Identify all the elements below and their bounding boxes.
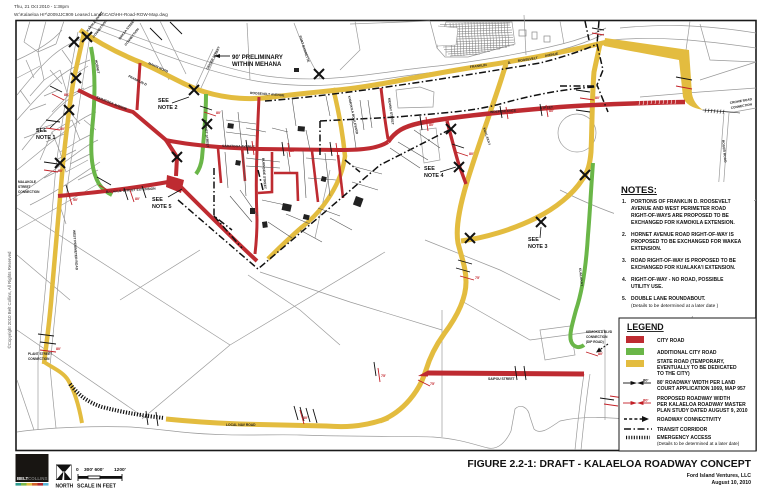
svg-text:W:\Kalaeloa HI*\2009JJC909 L: W:\Kalaeloa HI*\2009JJC909 Leased Lands\… [14, 12, 168, 17]
svg-text:SEE: SEE [152, 197, 163, 203]
svg-text:2.: 2. [622, 232, 627, 238]
svg-text:LEGEND: LEGEND [627, 322, 664, 332]
svg-text:NOTE 1: NOTE 1 [36, 135, 55, 141]
svg-text:(Details to be determined at a: (Details to be determined at a later dat… [657, 441, 740, 446]
svg-text:SEE: SEE [424, 166, 435, 172]
svg-text:80': 80' [509, 111, 514, 115]
svg-text:ROAD RIGHT-OF-WAY IS PROPOSED: ROAD RIGHT-OF-WAY IS PROPOSED TO BE [631, 258, 737, 264]
svg-text:NOTE 5: NOTE 5 [152, 204, 171, 210]
svg-text:LOCAL NAV ROAD: LOCAL NAV ROAD [226, 423, 256, 427]
svg-text:D.: D. [508, 61, 512, 65]
svg-text:80': 80' [549, 109, 554, 113]
svg-text:80': 80' [254, 147, 259, 151]
svg-text:EXCHANGED FOR KUALAKA'I EXTENS: EXCHANGED FOR KUALAKA'I EXTENSION. [631, 265, 736, 271]
svg-text:80': 80' [469, 152, 474, 156]
svg-text:EXCHANGED FOR KAMOKILA EXTENSI: EXCHANGED FOR KAMOKILA EXTENSION. [631, 220, 735, 226]
svg-text:CITY ROAD: CITY ROAD [657, 338, 685, 344]
svg-text:80': 80' [595, 96, 600, 100]
svg-text:PORTIONS OF FRANKLIN D. ROOSEV: PORTIONS OF FRANKLIN D. ROOSEVELT [631, 199, 731, 205]
svg-text:300' 600': 300' 600' [84, 467, 104, 473]
svg-text:0: 0 [76, 467, 79, 473]
svg-text:NOTE 3: NOTE 3 [528, 244, 547, 250]
svg-text:SAIPOU STREET: SAIPOU STREET [488, 377, 515, 381]
svg-text:COURT APPLICATION 1069, MAP 95: COURT APPLICATION 1069, MAP 957 [657, 386, 746, 392]
svg-text:EXTENSION.: EXTENSION. [631, 246, 662, 252]
svg-text:80': 80' [598, 352, 603, 356]
svg-text:80': 80' [135, 197, 140, 201]
svg-text:80': 80' [60, 127, 65, 131]
svg-text:AVENUE AND WEST PERIMETER ROAD: AVENUE AND WEST PERIMETER ROAD [631, 206, 726, 212]
svg-text:(DIP ROAD): (DIP ROAD) [586, 340, 604, 344]
svg-text:1200': 1200' [114, 467, 126, 473]
svg-text:80': 80' [56, 347, 61, 351]
svg-text:80': 80' [216, 111, 221, 115]
svg-text:STREET: STREET [18, 185, 31, 189]
svg-text:80': 80' [643, 378, 648, 383]
svg-text:ROADWAY CONNECTIVITY: ROADWAY CONNECTIVITY [657, 417, 722, 423]
svg-text:80': 80' [58, 169, 63, 173]
svg-text:75': 75' [430, 382, 435, 386]
svg-text:75': 75' [475, 276, 480, 280]
svg-text:SARATOGA AVENUE: SARATOGA AVENUE [222, 144, 256, 149]
svg-text:August 10, 2010: August 10, 2010 [712, 480, 752, 486]
svg-text:NOTE 2: NOTE 2 [158, 105, 177, 111]
svg-text:4.: 4. [622, 277, 627, 283]
svg-text:SEE: SEE [36, 128, 47, 134]
svg-text:3.: 3. [622, 258, 627, 264]
svg-text:CONNECTION: CONNECTION [586, 335, 608, 339]
svg-text:80': 80' [290, 149, 295, 153]
svg-text:TRANSIT CORRIDOR: TRANSIT CORRIDOR [657, 427, 708, 433]
svg-text:Ford Island Ventures, LLC: Ford Island Ventures, LLC [687, 473, 752, 479]
svg-text:80': 80' [429, 123, 434, 127]
svg-text:Thu, 21 Oct 2010 - 1:38pm: Thu, 21 Oct 2010 - 1:38pm [14, 4, 69, 9]
svg-text:SCALE IN FEET: SCALE IN FEET [77, 484, 117, 490]
svg-text:MALAKOLE: MALAKOLE [18, 180, 36, 184]
svg-text:FIGURE 2.2-1: DRAFT - KALAELOA: FIGURE 2.2-1: DRAFT - KALAELOA ROADWAY C… [467, 459, 751, 470]
svg-text:PLAN STUDY DATED AUGUST 9, 201: PLAN STUDY DATED AUGUST 9, 2010 [657, 408, 748, 414]
svg-text:80': 80' [338, 149, 343, 153]
svg-text:50': 50' [73, 198, 78, 202]
svg-text:NOTES:: NOTES: [621, 185, 657, 196]
svg-text:80': 80' [64, 93, 69, 97]
svg-text:SEE: SEE [158, 98, 169, 104]
svg-text:HORNET AVENUE ROAD RIGHT-OF-WA: HORNET AVENUE ROAD RIGHT-OF-WAY IS [631, 232, 734, 238]
svg-text:BELTCOLLINS: BELTCOLLINS [17, 476, 47, 481]
svg-text:RIGHT-OF-WAY - NO ROAD, POSSIB: RIGHT-OF-WAY - NO ROAD, POSSIBLE [631, 277, 724, 283]
svg-text:KEMOKILA BLVD: KEMOKILA BLVD [586, 330, 613, 334]
svg-text:CONNECTION: CONNECTION [18, 190, 40, 194]
svg-text:30': 30' [303, 416, 308, 420]
svg-text:RIGHT-OF-WAYS ARE PROPOSED TO: RIGHT-OF-WAYS ARE PROPOSED TO BE [631, 213, 730, 219]
svg-text:NOTE 4: NOTE 4 [424, 173, 443, 179]
svg-text:CONNECTION: CONNECTION [28, 357, 50, 361]
svg-text:80': 80' [114, 188, 119, 192]
svg-text:SEE: SEE [528, 237, 539, 243]
svg-text:ADDITIONAL CITY ROAD: ADDITIONAL CITY ROAD [657, 350, 717, 356]
svg-text:(Details to be determined at a: (Details to be determined at a later dat… [631, 303, 719, 309]
svg-text:©Copyright 2010 Belt Collin: ©Copyright 2010 Belt Collins, All Rights… [7, 251, 12, 349]
svg-text:DOUBLE LANE ROUNDABOUT.: DOUBLE LANE ROUNDABOUT. [631, 296, 706, 302]
svg-text:80': 80' [643, 398, 648, 403]
svg-text:1.: 1. [622, 199, 627, 205]
svg-text:PLANT STREET: PLANT STREET [28, 352, 52, 356]
svg-text:75': 75' [381, 374, 386, 378]
svg-text:NORTH: NORTH [56, 484, 74, 490]
svg-text:WITHIN MEHANA: WITHIN MEHANA [232, 62, 282, 68]
svg-text:PROPOSED TO BE EXCHANGED FOR W: PROPOSED TO BE EXCHANGED FOR WAKEA [631, 239, 742, 245]
svg-text:UTILITY USE.: UTILITY USE. [631, 284, 663, 290]
svg-text:TO THE CITY): TO THE CITY) [657, 371, 690, 377]
svg-text:5.: 5. [622, 296, 627, 302]
svg-text:90' PRELIMINARY: 90' PRELIMINARY [232, 55, 283, 61]
